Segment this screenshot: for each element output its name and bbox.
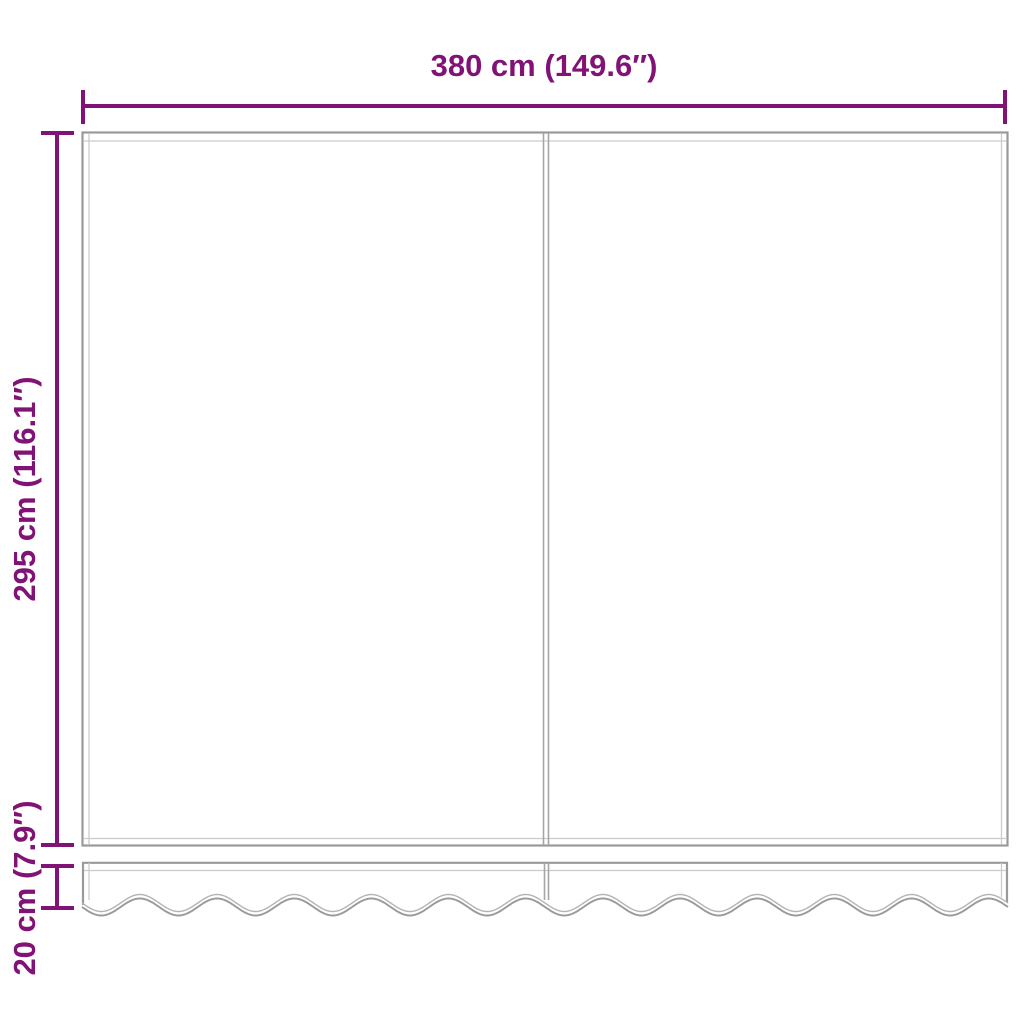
width-dimension-label: 380 cm (149.6″) [431, 48, 658, 84]
valance-scallop-outer-line [82, 899, 1008, 916]
main-fabric-panel [83, 133, 1008, 846]
width-dimension-line [83, 90, 1005, 124]
height-dimension-line [41, 133, 74, 845]
valance-height-dimension-line [41, 866, 74, 908]
valance-strip [82, 862, 1008, 916]
awning-fabric-drawing [0, 0, 1024, 1024]
height-dimension-label: 295 cm (116.1″) [7, 376, 43, 601]
valance-height-dimension-label: 20 cm (7.9″) [7, 800, 43, 975]
main-panel-outline [83, 133, 1008, 846]
product-dimension-diagram: 380 cm (149.6″) 295 cm (116.1″) 20 cm (7… [0, 0, 1024, 1024]
